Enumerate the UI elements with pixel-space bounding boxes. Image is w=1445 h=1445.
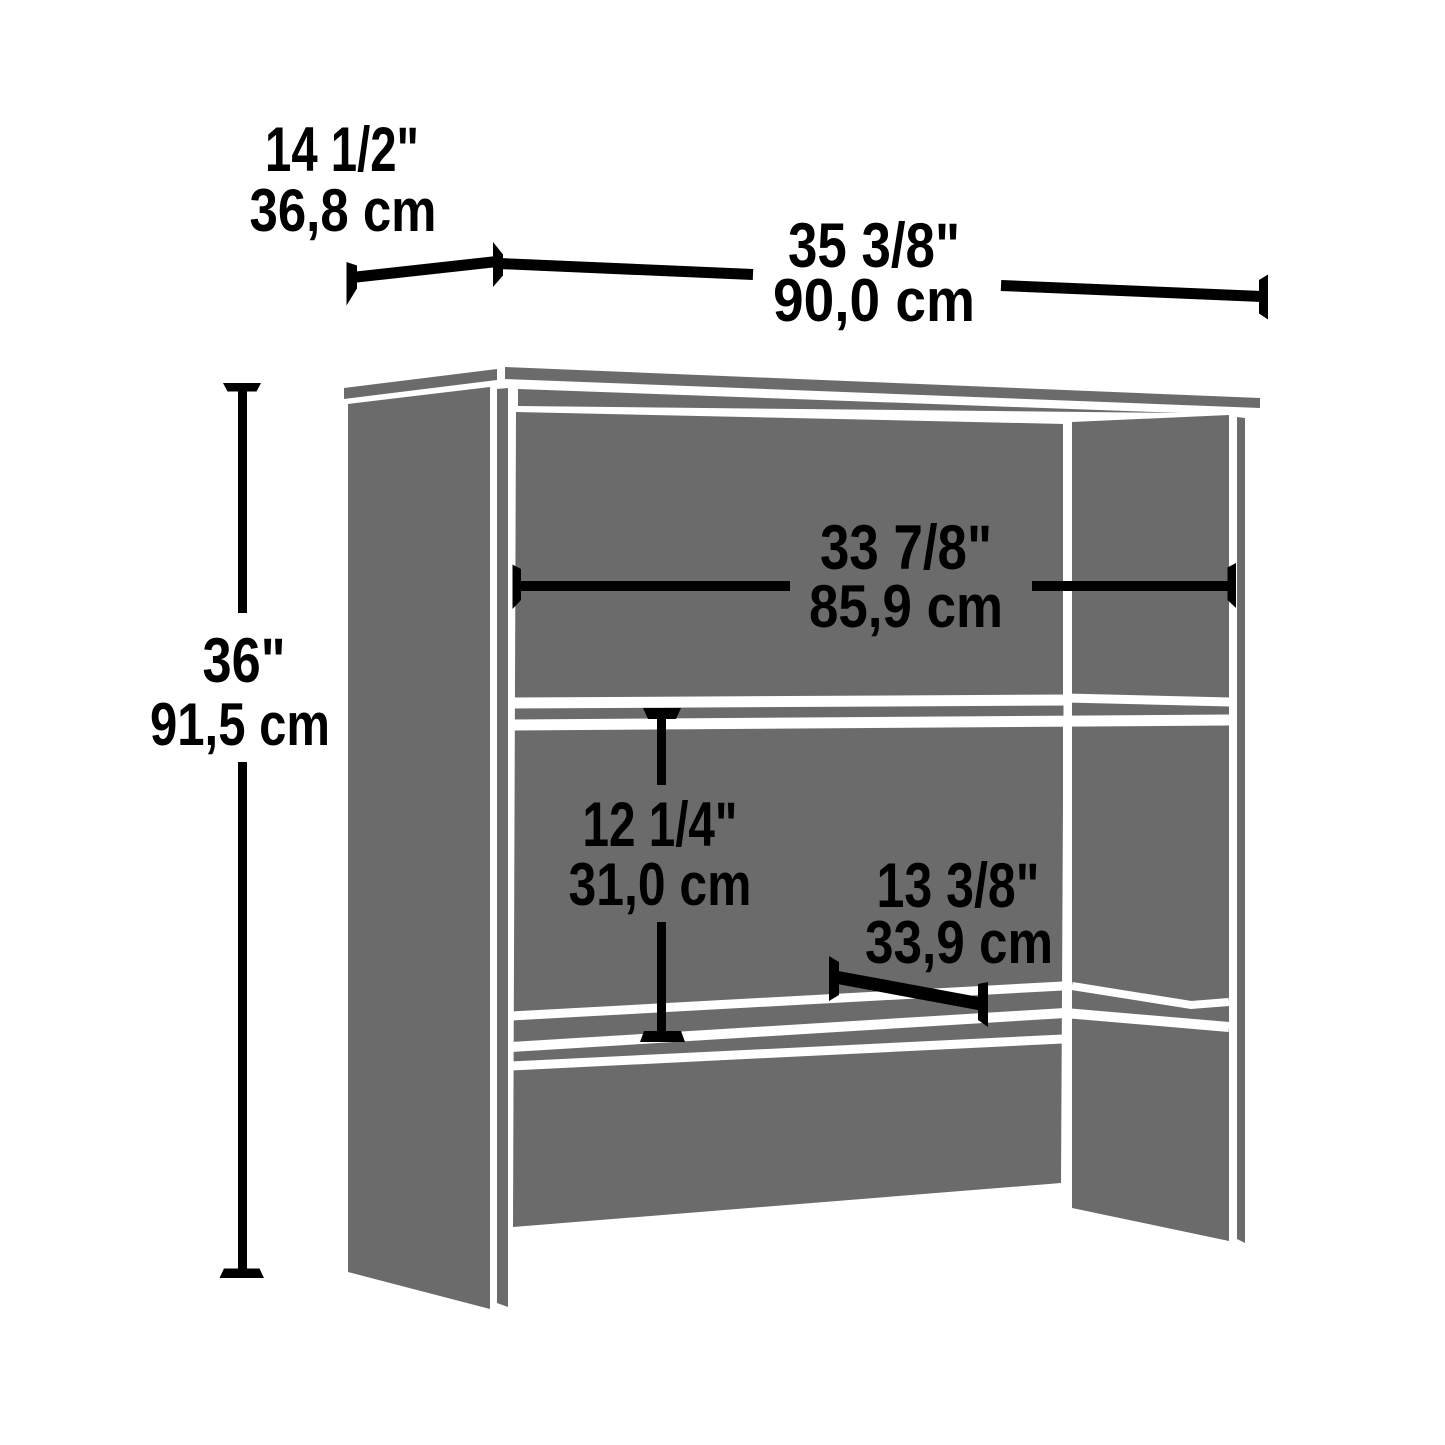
svg-text:31,0 cm: 31,0 cm — [569, 851, 752, 918]
svg-text:91,5 cm: 91,5 cm — [150, 691, 330, 758]
svg-text:33,9 cm: 33,9 cm — [865, 909, 1053, 976]
svg-text:36": 36" — [203, 626, 286, 696]
svg-text:14 1/2": 14 1/2" — [265, 115, 419, 185]
svg-text:12 1/4": 12 1/4" — [583, 790, 738, 860]
svg-text:90,0 cm: 90,0 cm — [773, 267, 975, 334]
svg-text:36,8 cm: 36,8 cm — [250, 177, 437, 244]
svg-text:85,9 cm: 85,9 cm — [809, 573, 1003, 640]
